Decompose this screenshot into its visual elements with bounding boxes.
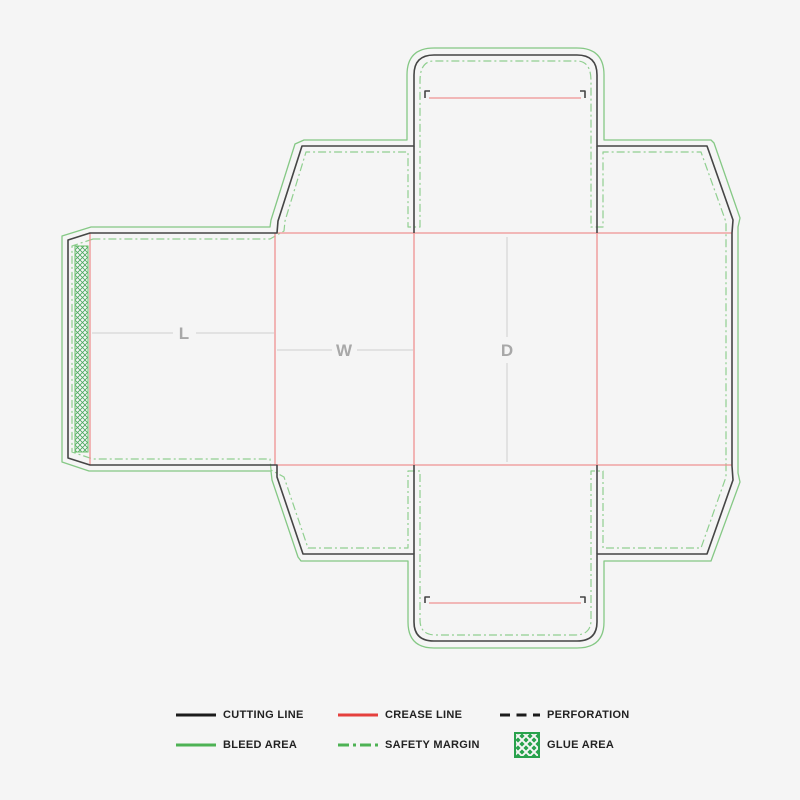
- legend-label-bleed-area: BLEED AREA: [223, 739, 297, 751]
- hook-bottom-left: [425, 597, 430, 603]
- legend-item-cutting-line: CUTTING LINE: [176, 700, 338, 730]
- hook-top-right: [580, 91, 585, 98]
- bleed-area-swatch-icon: [176, 739, 216, 751]
- cutting-line-swatch-icon: [176, 709, 216, 721]
- legend-item-bleed-area: BLEED AREA: [176, 730, 338, 760]
- dieline-page: { "colors": { "bg": "#f5f5f5", "cut": "#…: [0, 0, 800, 800]
- cutting-outline: [68, 55, 733, 641]
- legend-label-safety-margin: SAFETY MARGIN: [385, 739, 480, 751]
- legend-item-crease-line: CREASE LINE: [338, 700, 500, 730]
- width-label: W: [336, 341, 353, 360]
- bleed-area-outline: [62, 48, 740, 648]
- hook-bottom-right: [580, 597, 585, 603]
- perforation-swatch-icon: [500, 709, 540, 721]
- hook-top-left: [425, 91, 430, 98]
- legend-item-glue-area: GLUE AREA: [500, 730, 660, 760]
- depth-label: D: [501, 341, 513, 360]
- glue-area-hatch: [75, 246, 88, 452]
- legend-label-glue-area: GLUE AREA: [547, 739, 614, 751]
- legend-item-safety-margin: SAFETY MARGIN: [338, 730, 500, 760]
- box-dieline-diagram: L W D: [0, 0, 800, 800]
- dimension-lines: L W D: [92, 237, 513, 462]
- legend-item-perforation: PERFORATION: [500, 700, 660, 730]
- safety-margin-swatch-icon: [338, 739, 378, 751]
- crease-line-swatch-icon: [338, 709, 378, 721]
- legend: CUTTING LINE CREASE LINE PERFORATION BLE…: [176, 700, 676, 760]
- safety-margin-outline: [72, 61, 726, 635]
- legend-label-perforation: PERFORATION: [547, 709, 630, 721]
- legend-label-cutting-line: CUTTING LINE: [223, 709, 304, 721]
- legend-label-crease-line: CREASE LINE: [385, 709, 462, 721]
- length-label: L: [179, 324, 189, 343]
- glue-area-swatch-icon: [500, 732, 540, 758]
